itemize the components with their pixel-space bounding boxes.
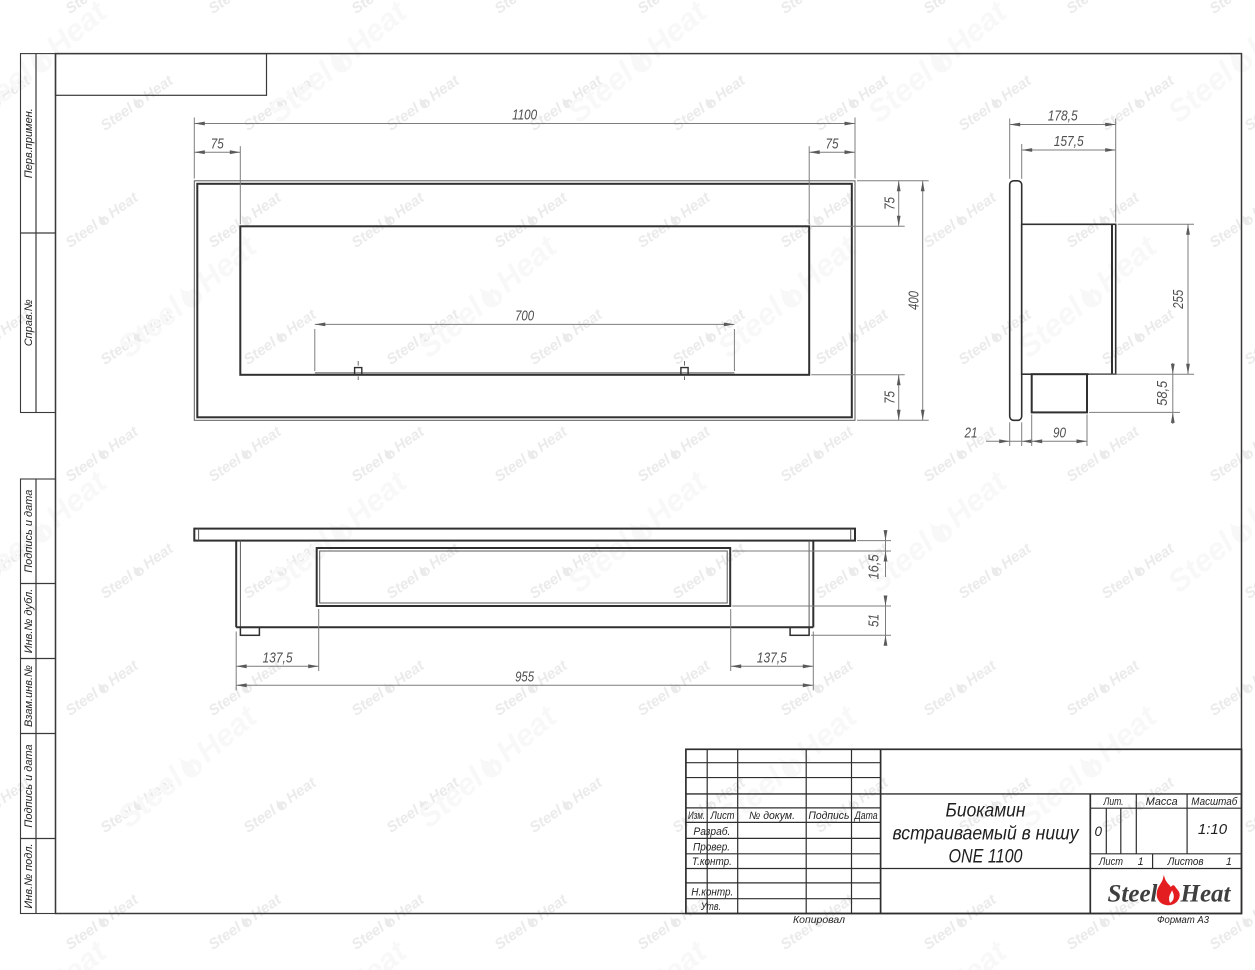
svg-text:Лист: Лист (1098, 856, 1123, 868)
svg-text:21: 21 (964, 424, 978, 441)
svg-text:Перв.примен.: Перв.примен. (23, 108, 35, 178)
svg-text:Лист: Лист (710, 810, 735, 822)
svg-text:Биокамин: Биокамин (946, 800, 1026, 822)
svg-text:75: 75 (211, 135, 225, 152)
svg-text:700: 700 (515, 307, 534, 324)
svg-text:ONE 1100: ONE 1100 (949, 846, 1023, 868)
svg-text:Провер.: Провер. (693, 841, 730, 853)
svg-text:Изм.: Изм. (688, 810, 705, 822)
svg-text:178,5: 178,5 (1048, 108, 1079, 125)
svg-text:Лит.: Лит. (1103, 796, 1124, 808)
svg-text:137,5: 137,5 (757, 649, 788, 666)
svg-text:1100: 1100 (512, 107, 538, 124)
svg-text:Подпись и дата: Подпись и дата (23, 744, 35, 827)
svg-text:Утв.: Утв. (700, 901, 721, 913)
svg-text:Взам.инв.№: Взам.инв.№ (23, 665, 35, 727)
svg-text:Heat: Heat (1180, 881, 1232, 908)
svg-text:137,5: 137,5 (263, 649, 294, 666)
svg-text:Steel: Steel (1108, 881, 1158, 908)
svg-text:1:10: 1:10 (1198, 821, 1228, 838)
svg-text:51: 51 (866, 614, 883, 627)
svg-text:Дата: Дата (854, 810, 878, 822)
svg-text:58,5: 58,5 (1154, 380, 1171, 406)
svg-text:1: 1 (1226, 856, 1232, 868)
svg-text:Масштаб: Масштаб (1191, 796, 1238, 808)
svg-text:255: 255 (1170, 289, 1187, 309)
svg-text:Т.контр.: Т.контр. (692, 856, 732, 868)
svg-text:Подпись: Подпись (808, 810, 849, 822)
svg-text:Подпись и дата: Подпись и дата (23, 490, 35, 573)
svg-text:Справ.№: Справ.№ (23, 299, 35, 346)
svg-text:Масса: Масса (1146, 796, 1178, 808)
svg-text:90: 90 (1053, 424, 1067, 441)
svg-text:Н.контр.: Н.контр. (691, 886, 733, 898)
svg-text:1: 1 (1138, 856, 1144, 868)
svg-text:Копировал: Копировал (793, 914, 845, 926)
svg-text:75: 75 (881, 196, 898, 210)
svg-text:0: 0 (1095, 824, 1103, 839)
svg-text:Инв.№ дубл.: Инв.№ дубл. (23, 589, 35, 654)
svg-text:75: 75 (881, 390, 898, 404)
svg-text:встраиваемый в нишу: встраиваемый в нишу (893, 823, 1080, 845)
svg-text:№ докум.: № докум. (749, 810, 795, 822)
svg-text:400: 400 (905, 291, 922, 310)
svg-text:75: 75 (826, 135, 840, 152)
svg-text:Разраб.: Разраб. (693, 826, 730, 838)
svg-text:955: 955 (515, 668, 534, 685)
svg-text:Формат А3: Формат А3 (1157, 914, 1209, 926)
svg-text:Инв.№ подл.: Инв.№ подл. (23, 843, 35, 908)
svg-text:16,5: 16,5 (866, 554, 883, 580)
svg-text:157,5: 157,5 (1054, 133, 1085, 150)
svg-text:Листов: Листов (1167, 856, 1204, 868)
